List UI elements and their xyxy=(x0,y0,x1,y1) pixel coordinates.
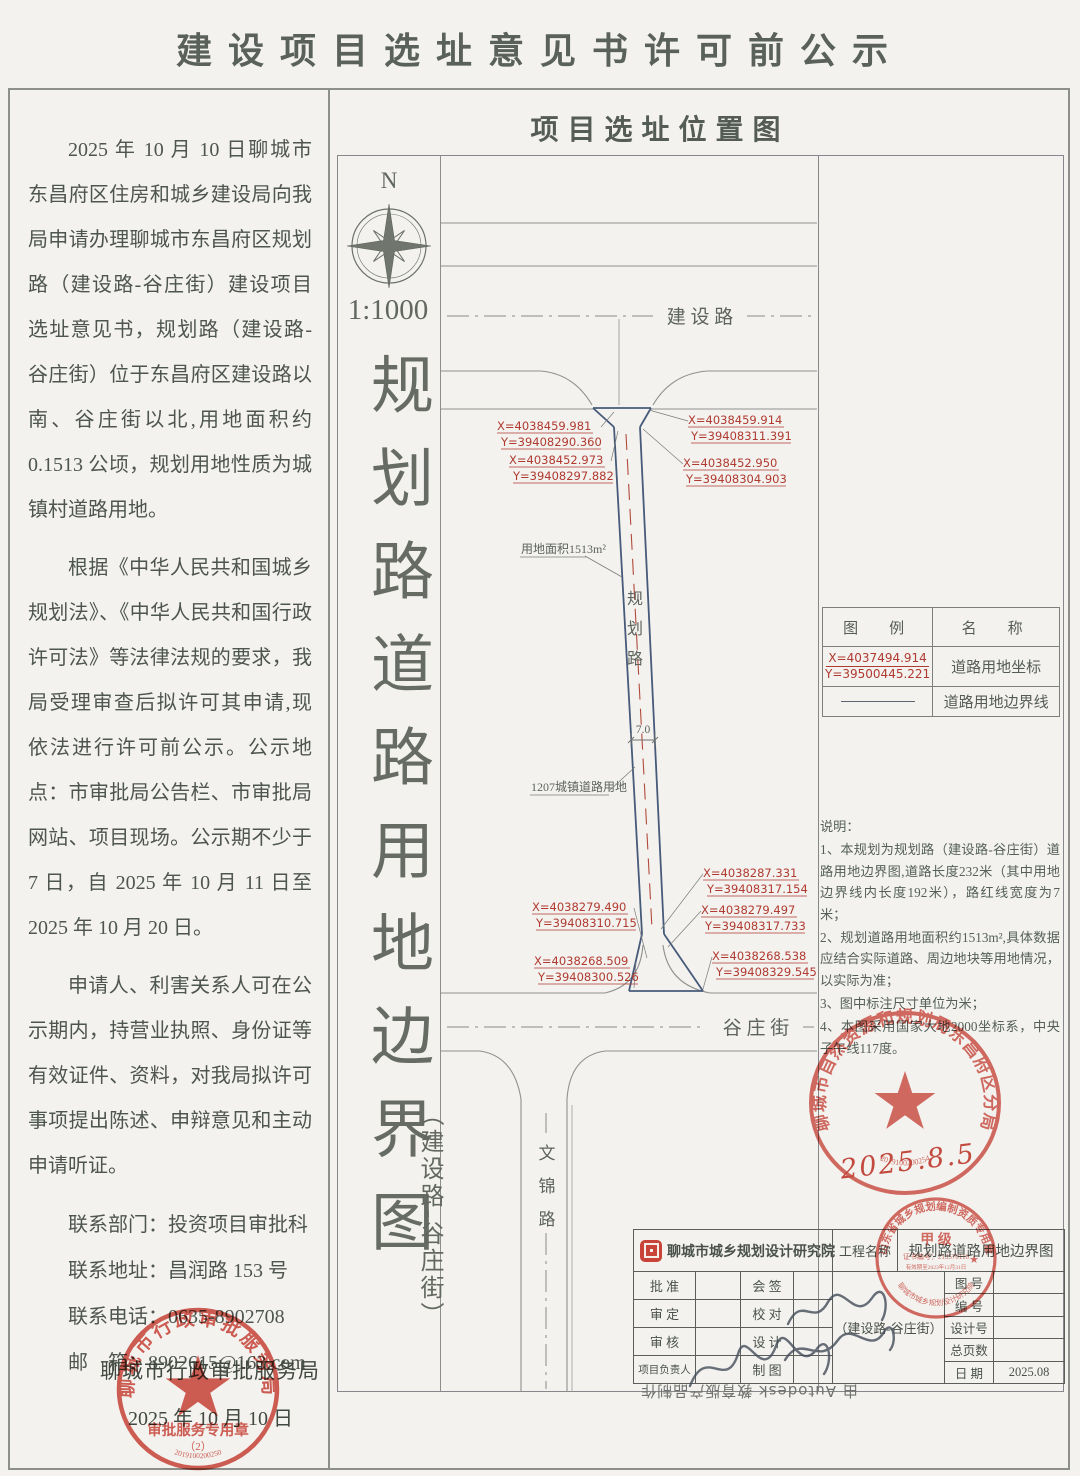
drawing-title-strip: N 1:1000 规划路道路用地边界图 （建设路-谷庄街） xyxy=(338,156,441,1391)
road-width-dimension: 7.0 xyxy=(636,724,651,736)
svg-text:Y=39408300.526: Y=39408300.526 xyxy=(537,970,639,984)
planned-road-label: 规 划 路 xyxy=(627,590,643,668)
svg-text:X=4038268.509: X=4038268.509 xyxy=(534,954,628,968)
coordinate-label: X=4038279.490 Y=39408310.715 xyxy=(532,900,637,930)
approval-seal-subtitle: 审批服务专用章 xyxy=(147,1421,249,1439)
svg-text:X=4038287.331: X=4038287.331 xyxy=(703,866,797,880)
panel-divider xyxy=(818,156,819,1391)
north-road-label: 建 设 路 xyxy=(667,306,734,328)
compass-rose-icon: N xyxy=(346,166,432,302)
coordinate-label: X=4038268.538 Y=39408329.545 xyxy=(712,949,817,979)
svg-text:Y=39408310.715: Y=39408310.715 xyxy=(535,916,637,930)
qualification-star-icon: ★ xyxy=(969,1254,979,1266)
legend-header-name: 名 称 xyxy=(933,608,1060,647)
qualification-validity: 有效期至2023年12月31日 xyxy=(906,1263,967,1271)
coordinate-label: X=4038459.914 Y=39408311.391 xyxy=(688,413,792,443)
map-title: 项目选址位置图 xyxy=(380,108,940,148)
page-title: 建设项目选址意见书许可前公示 xyxy=(0,22,1080,74)
svg-text:Y=39408317.733: Y=39408317.733 xyxy=(704,919,806,933)
south-road-label: 谷 庄 街 xyxy=(723,1017,790,1039)
resources-stamp-star-icon xyxy=(875,1071,936,1129)
legend-coordinate-name: 道路用地坐标 xyxy=(933,647,1060,687)
site-plan-drawing: 建 设 路 谷 庄 街 文 锦 路 规 划 路 用地面积15 xyxy=(441,156,818,1393)
svg-text:X=4038459.981: X=4038459.981 xyxy=(497,419,591,433)
note-item: 1、本规划为规划路（建设路-谷庄街）道路用地边界图,道路长度232米（其中用地边… xyxy=(820,839,1060,925)
autodesk-watermark: 由 Autodesk 教育版产品制作 xyxy=(618,1381,880,1402)
coordinate-label: X=4038459.981 Y=39408290.360 xyxy=(497,419,602,449)
svg-text:Y=39408304.903: Y=39408304.903 xyxy=(685,472,787,486)
coordinate-label: X=4038452.973 Y=39408297.882 xyxy=(509,453,614,483)
west-road-label: 文 锦 路 xyxy=(539,1144,556,1229)
map-scale: 1:1000 xyxy=(338,294,438,327)
svg-text:Y=39408311.391: Y=39408311.391 xyxy=(690,429,792,443)
area-label: 用地面积1513m² xyxy=(521,542,606,556)
coordinate-label: X=4038452.950 Y=39408304.903 xyxy=(683,456,787,486)
svg-text:X=4038268.538: X=4038268.538 xyxy=(712,949,806,963)
svg-text:文: 文 xyxy=(539,1144,556,1163)
notice-paragraph-2: 根据《中华人民共和国城乡规划法》、《中华人民共和国行政许可法》等法律法规的要求，… xyxy=(28,546,312,951)
svg-text:Y=39408317.154: Y=39408317.154 xyxy=(706,882,808,896)
qualification-stamp: 山东省城乡规划编制资质专用章 甲 级 证书编号：213570110 有效期至20… xyxy=(872,1194,1000,1322)
coordinate-labels: X=4038459.981 Y=39408290.360 X=4038459.9… xyxy=(497,413,817,984)
signature-proofread xyxy=(788,1292,886,1324)
drawing-side-subtitle: （建设路-谷庄街） xyxy=(414,1102,444,1402)
svg-text:X=4038459.914: X=4038459.914 xyxy=(688,413,782,427)
land-use-label: 1207城镇道路用地 xyxy=(531,779,627,794)
notes-title: 说明： xyxy=(820,816,1060,837)
approval-seal-star-icon xyxy=(166,1355,231,1416)
svg-text:Y=39408290.360: Y=39408290.360 xyxy=(500,435,602,449)
svg-text:X=4038279.497: X=4038279.497 xyxy=(701,903,795,917)
notice-paragraph-3: 申请人、利害关系人可在公示期内，持营业执照、身份证等有效证件、资料，对我局拟许可… xyxy=(28,964,312,1189)
coordinate-label: X=4038279.497 Y=39408317.733 xyxy=(701,903,806,933)
svg-text:锦: 锦 xyxy=(539,1177,556,1196)
map-annotations: 用地面积1513m² 1207城镇道路用地 7.0 xyxy=(520,542,658,795)
approval-seal-stamp: 聊城市行政审批服务局 审批服务专用章 （2） 2019100200250 xyxy=(98,1300,298,1476)
legend-header-symbol: 图 例 xyxy=(823,608,933,647)
qualification-org: 聊城市城乡规划设计研究院 xyxy=(896,1280,977,1308)
notice-text-panel: 2025 年 10 月 10 日聊城市东昌府区住房和城乡建设局向我局申请办理聊城… xyxy=(8,88,330,1470)
svg-text:Y=39408329.545: Y=39408329.545 xyxy=(715,965,817,979)
legend-table: 图 例 名 称 X=4037494.914 Y=39500445.221 道路用… xyxy=(822,607,1060,717)
boundary-line-icon xyxy=(841,701,915,702)
qualification-cert-no: 证书编号：213570110 xyxy=(903,1252,970,1261)
svg-text:Y=39408297.882: Y=39408297.882 xyxy=(512,469,614,483)
contact-address: 联系地址：昌润路 153 号 xyxy=(28,1248,312,1294)
planned-road-centerline xyxy=(626,434,652,929)
signature-project-lead xyxy=(690,1338,829,1386)
svg-text:规: 规 xyxy=(627,590,643,608)
coordinate-label: X=4038287.331 Y=39408317.154 xyxy=(703,866,808,896)
svg-text:X=4038279.490: X=4038279.490 xyxy=(532,900,626,914)
compass-north-letter: N xyxy=(381,168,398,193)
legend-coordinate-sample: X=4037494.914 Y=39500445.221 xyxy=(823,647,933,687)
svg-text:X=4038452.973: X=4038452.973 xyxy=(509,453,603,467)
svg-text:路: 路 xyxy=(627,650,643,668)
legend-boundary-sample xyxy=(823,687,933,717)
notice-paragraph-1: 2025 年 10 月 10 日聊城市东昌府区住房和城乡建设局向我局申请办理聊城… xyxy=(28,128,312,533)
svg-text:路: 路 xyxy=(539,1210,556,1229)
coordinate-label: X=4038268.509 Y=39408300.526 xyxy=(534,954,639,984)
svg-text:划: 划 xyxy=(627,620,643,638)
svg-text:X=4038452.950: X=4038452.950 xyxy=(683,456,777,470)
contact-department: 联系部门：投资项目审批科 xyxy=(28,1202,312,1248)
svg-text:聊城市城乡规划设计研究院: 聊城市城乡规划设计研究院 xyxy=(896,1280,977,1308)
road-edge-lines xyxy=(441,223,817,1392)
note-item: 2、规划道路用地面积约1513m²,具体数据应结合实际道路、周边地块等用地情况，… xyxy=(820,927,1060,991)
qualification-level: 甲 级 xyxy=(920,1231,952,1248)
legend-boundary-name: 道路用地边界线 xyxy=(933,687,1060,717)
